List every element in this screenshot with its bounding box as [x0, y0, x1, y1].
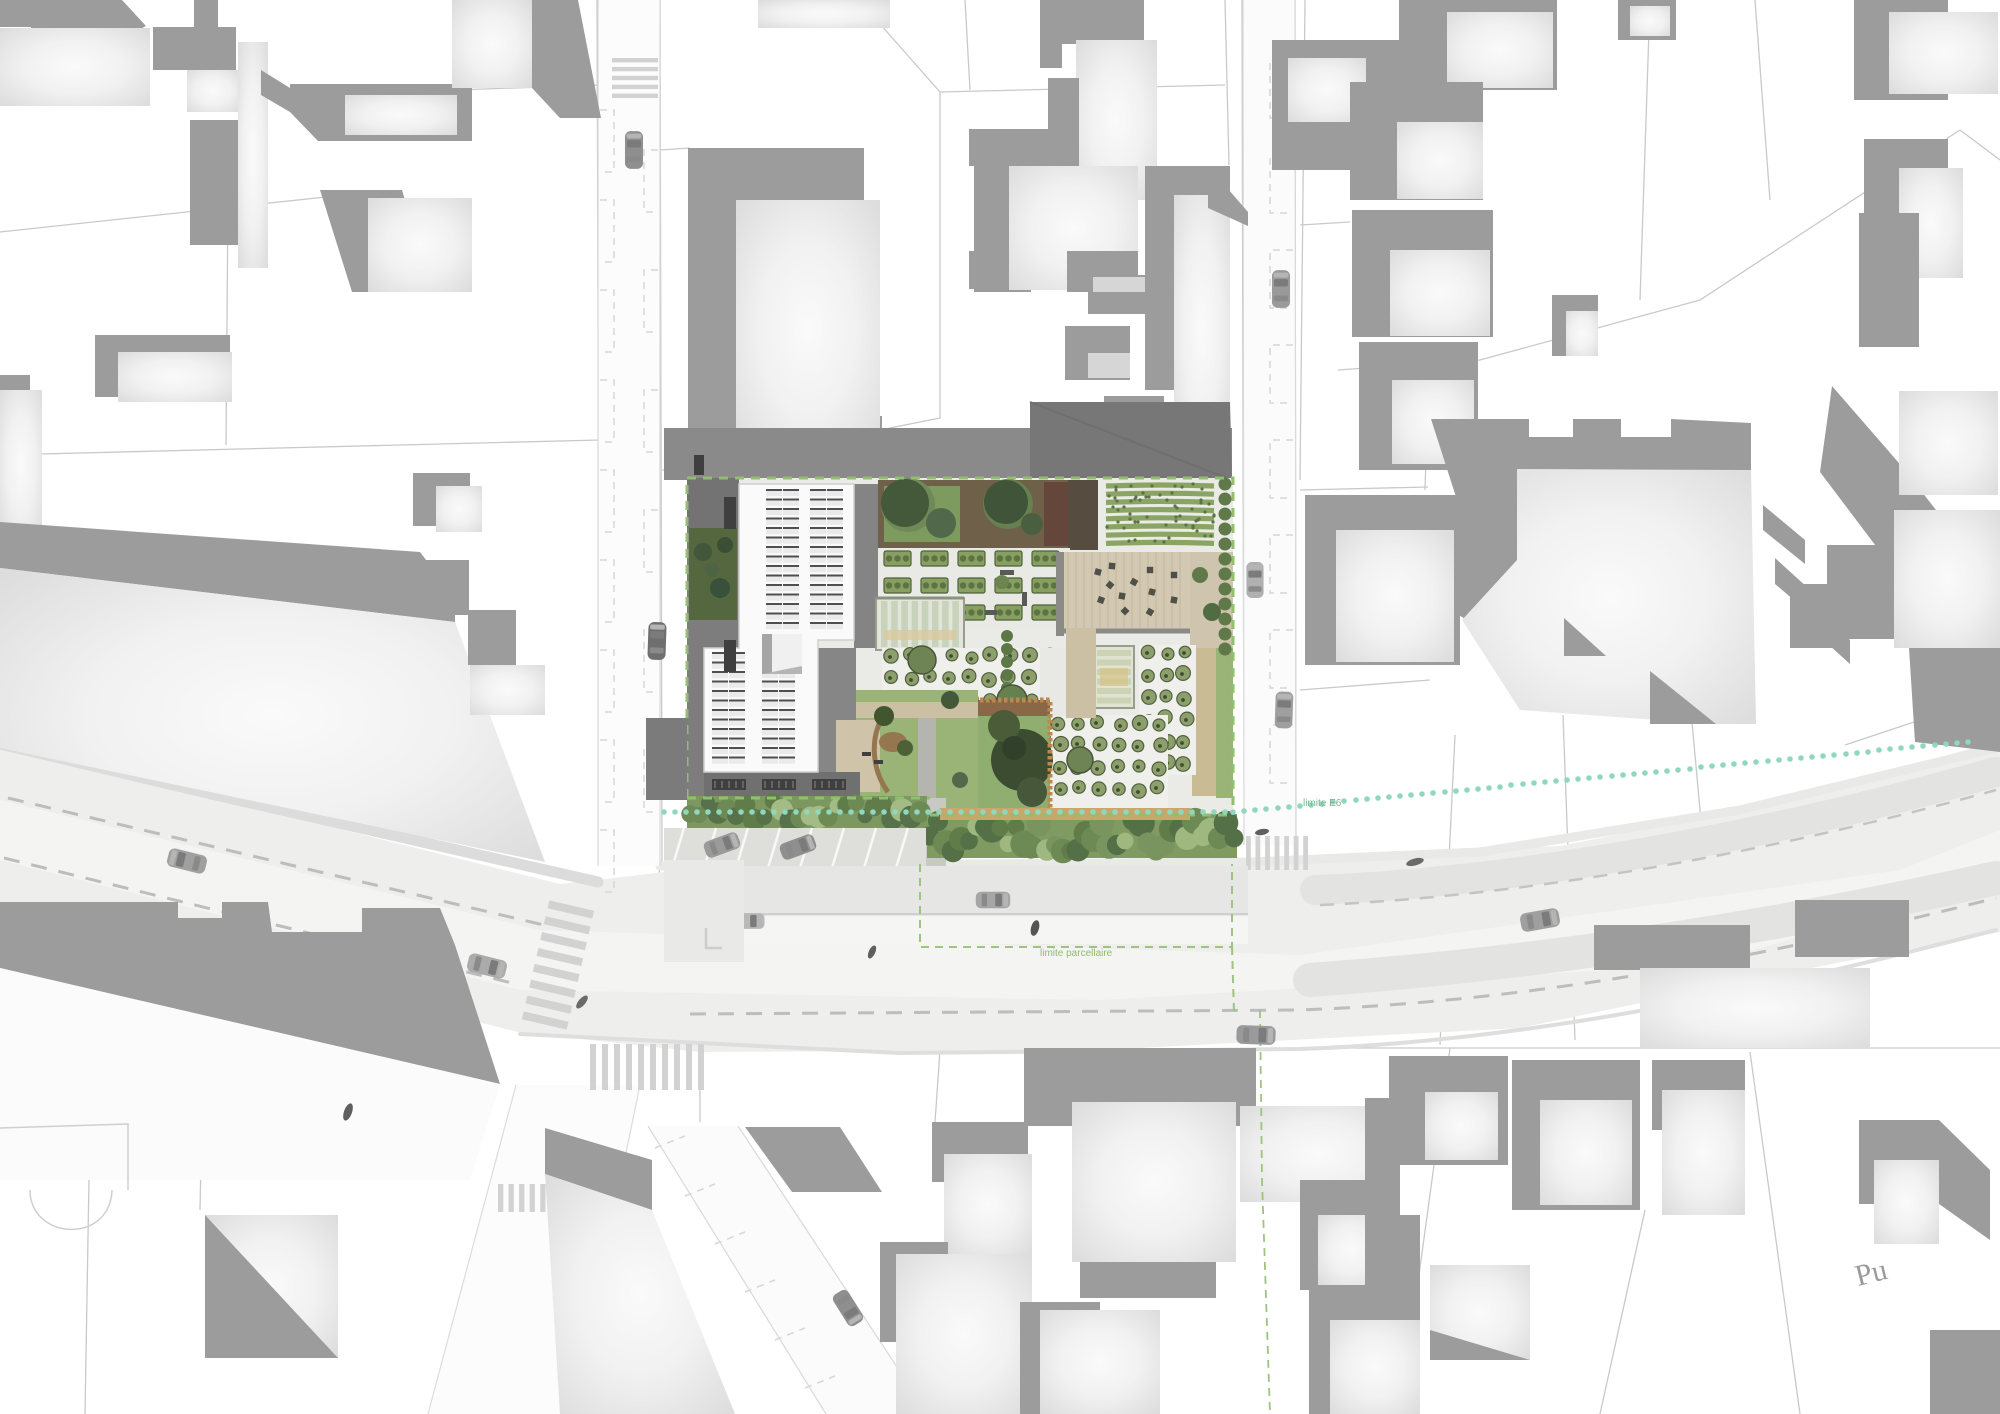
svg-text:limite E6: limite E6: [1303, 798, 1342, 809]
svg-text:limite parcellaire: limite parcellaire: [1040, 948, 1113, 959]
